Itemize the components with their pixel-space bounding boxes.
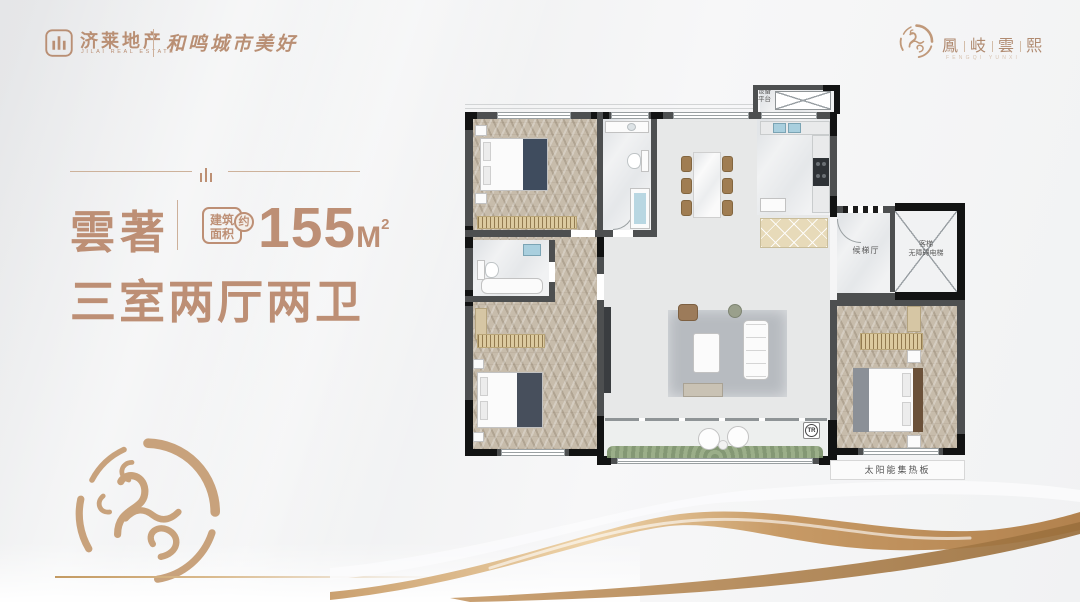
bed-headboard: [913, 368, 923, 432]
wall: [753, 85, 758, 114]
wall-pier: [830, 112, 837, 136]
pillow: [483, 166, 491, 185]
armchair: [678, 304, 698, 321]
toilet-tank: [477, 260, 485, 280]
dining-chair: [681, 200, 692, 216]
area-superscript: 2: [381, 216, 389, 233]
title-divider: [177, 200, 178, 250]
area-value: 155: [258, 196, 356, 260]
nightstand: [475, 193, 487, 204]
equipment-platform-label: 设备 平台: [756, 88, 773, 104]
elevator-lobby-label: 候梯厅: [839, 246, 893, 256]
dining-table: [693, 152, 721, 218]
wall-pier: [834, 85, 840, 114]
brand-slogan: 和鸣城市美好: [166, 29, 298, 56]
dining-chair: [681, 178, 692, 194]
door-gap: [571, 230, 595, 237]
wall-pier: [830, 448, 858, 455]
door-gap: [597, 274, 604, 300]
approx-badge: 约: [234, 212, 254, 232]
area-unit: M: [356, 221, 381, 254]
elevator-label: 客梯 无障碍电梯: [895, 241, 957, 259]
nightstand: [475, 125, 487, 136]
wall-pier: [465, 112, 473, 130]
wall-pier: [651, 112, 663, 119]
kitchen-sink: [773, 123, 786, 133]
elevator-wall: [895, 292, 965, 300]
ornament-line: [228, 171, 360, 172]
area-label-line2: 面积: [204, 227, 240, 241]
wall-pier: [830, 196, 837, 217]
floor-plan: 设备 平台: [455, 78, 975, 480]
sofa: [743, 320, 769, 380]
window: [611, 112, 649, 119]
wall-pier: [465, 449, 497, 456]
bed-throw: [853, 368, 869, 432]
sofa-cushion-lines: [746, 324, 766, 325]
separator: [964, 41, 965, 52]
elevator-wall: [957, 203, 965, 300]
balcony-pouf: [698, 428, 720, 450]
sliding-door: [605, 418, 827, 421]
dining-chair: [722, 200, 733, 216]
wall: [465, 296, 555, 302]
dining-chair: [681, 156, 692, 172]
project-char: 雲: [998, 38, 1015, 55]
poster: 济莱地产 JILAI REAL ESTATE 和鸣城市美好 鳳岐雲熙 FENGQ…: [0, 0, 1080, 602]
header-divider: [153, 29, 154, 57]
wardrobe: [860, 333, 923, 350]
nightstand: [473, 432, 484, 442]
bed-throw: [517, 373, 542, 427]
bathtub: [481, 278, 543, 294]
wall: [830, 300, 965, 306]
building-icon: [44, 28, 74, 58]
toilet-tank: [641, 150, 649, 172]
elevator-wall: [895, 203, 965, 211]
sill-line: [465, 104, 757, 105]
pillow: [480, 401, 488, 420]
door-gap: [549, 262, 555, 282]
pillow: [483, 142, 491, 161]
project-subtitle: FENGQI YUNXI: [946, 55, 1020, 61]
nightstand: [907, 435, 921, 448]
project-emblem-icon: [898, 23, 935, 60]
separator: [992, 41, 993, 52]
tv-bench: [683, 383, 723, 397]
tr-marker: TR: [805, 424, 818, 437]
wall-pier: [597, 237, 604, 257]
equipment-unit: [775, 91, 831, 110]
project-char: 鳳: [942, 38, 959, 55]
window: [673, 112, 749, 119]
wall: [837, 293, 895, 300]
fridge: [760, 198, 786, 212]
elevator-label-1: 客梯: [895, 241, 957, 250]
nightstand: [907, 350, 921, 363]
dining-chair: [722, 178, 733, 194]
layout-title: 三室两厅两卫: [70, 266, 364, 332]
dining-chair: [722, 156, 733, 172]
window: [863, 448, 939, 455]
unit-title: 雲著: [70, 196, 170, 261]
brand-logo: [44, 28, 74, 63]
project-char: 岐: [970, 38, 987, 55]
ornament-line: [70, 171, 192, 172]
wardrobe: [477, 216, 577, 229]
balcony-side-table: [718, 440, 728, 450]
wall: [597, 112, 603, 237]
wall: [651, 119, 657, 237]
wall-pier: [569, 449, 603, 456]
burner: [816, 174, 820, 178]
dresser: [907, 306, 921, 332]
window: [761, 112, 817, 119]
sill-line: [465, 108, 757, 109]
kitchen-sink: [788, 123, 801, 133]
coffee-table: [693, 333, 720, 373]
burner: [822, 174, 826, 178]
wall: [753, 85, 825, 90]
gold-ribbons: [330, 468, 1080, 602]
toilet: [485, 262, 499, 278]
window: [501, 449, 565, 456]
project-name: 鳳岐雲熙: [942, 32, 1043, 56]
tv: [604, 307, 611, 393]
window: [497, 112, 571, 119]
entry-threshold: [843, 206, 883, 213]
wall-right: [957, 300, 965, 455]
cloud-emblem: [68, 432, 228, 592]
door-gap: [613, 230, 633, 237]
wall-pier: [943, 448, 965, 455]
bathtub-water: [634, 193, 646, 224]
pillow: [480, 377, 488, 396]
burner: [816, 162, 820, 166]
bed-throw: [523, 139, 547, 190]
ornament-bars: [200, 164, 212, 182]
entry-tile-floor: [760, 218, 828, 248]
sink: [523, 244, 541, 256]
project-char: 熙: [1026, 38, 1043, 55]
balcony-pouf: [727, 426, 749, 448]
side-table: [728, 304, 742, 318]
elevator-label-2: 无障碍电梯: [895, 250, 957, 259]
wall-pier: [465, 400, 473, 456]
wardrobe: [477, 334, 545, 348]
burner: [822, 162, 826, 166]
balcony-window: [617, 458, 813, 464]
brand-name-en: JILAI REAL ESTATE: [81, 49, 176, 55]
equipment-label-2: 平台: [756, 96, 773, 104]
separator: [1020, 41, 1021, 52]
pillow: [902, 373, 911, 397]
pillow: [902, 402, 911, 426]
nightstand: [473, 359, 484, 369]
sink-basin: [627, 123, 636, 131]
toilet: [627, 153, 641, 169]
area-value-group: 155M2: [258, 200, 389, 257]
